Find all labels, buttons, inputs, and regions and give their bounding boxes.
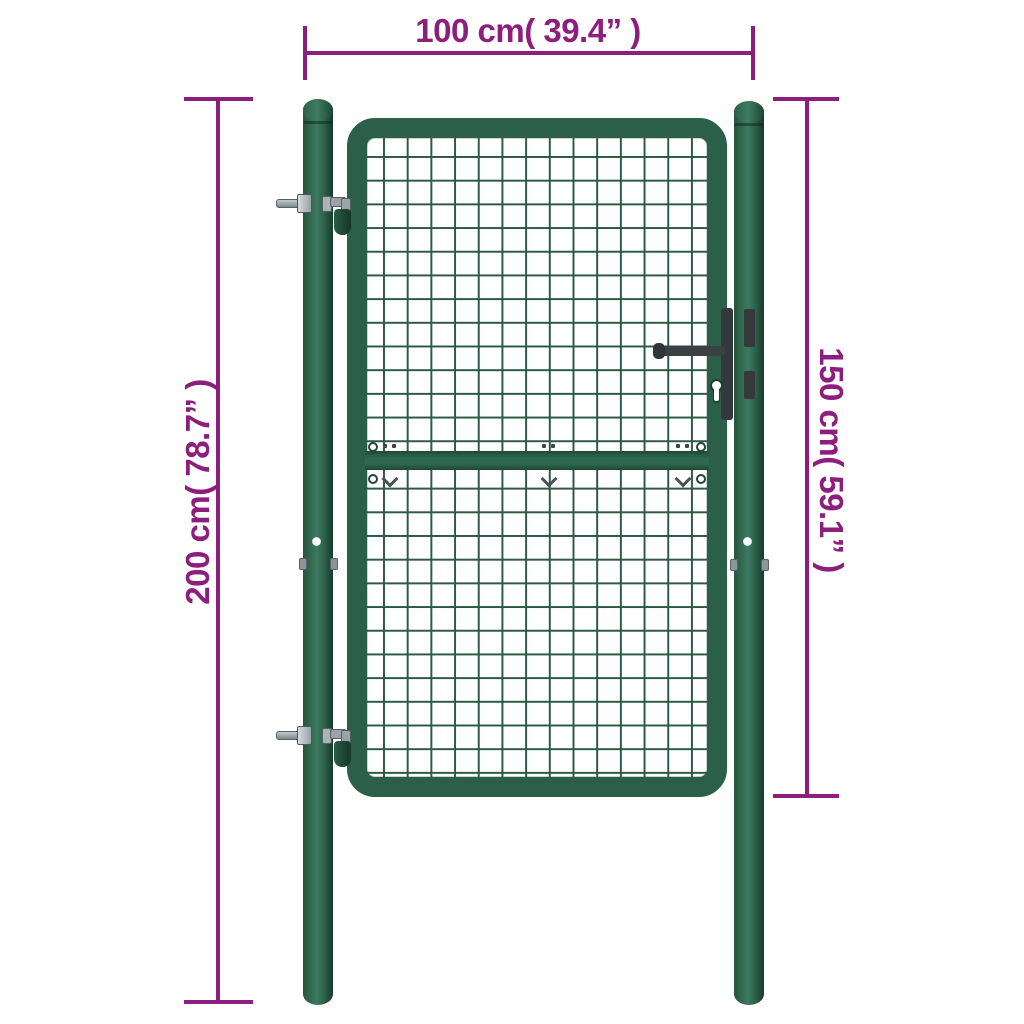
gate-height-dimension-cap-bottom: [773, 794, 839, 798]
width-dimension-line: [305, 51, 753, 55]
rail-bolt-right-bottom: [696, 474, 706, 484]
left-post-hole: [312, 537, 321, 546]
gate-frame: [347, 118, 727, 797]
post-height-dimension-label: 200 cm( 78.7” ): [179, 379, 217, 604]
right-post-tab-right: [761, 559, 769, 571]
gate-height-dimension-label: 150 cm( 59.1” ): [812, 347, 850, 572]
left-post-tab-right: [330, 558, 338, 570]
left-post-cap: [303, 99, 333, 121]
rail-bolt-right-top: [696, 442, 706, 452]
rail-clip-dots-center: [542, 444, 555, 448]
middle-rail: [365, 451, 709, 470]
left-post: [303, 99, 333, 1005]
top-hinge-sleeve: [334, 209, 351, 235]
rail-bolt-left-top: [368, 442, 378, 452]
width-dimension-label: 100 cm( 39.4” ): [415, 12, 640, 50]
latch-keeper-upper: [744, 309, 755, 347]
keyhole-tail: [714, 389, 719, 401]
top-hinge-nut: [297, 194, 312, 213]
bottom-hinge-nut: [297, 726, 312, 745]
lock-plate: [721, 308, 733, 420]
post-height-dimension-cap-top: [184, 97, 253, 101]
bottom-hinge-sleeve: [334, 741, 351, 767]
post-height-dimension-line: [216, 99, 220, 1002]
handle-end-cap: [653, 343, 665, 359]
left-post-cap-groove: [304, 121, 332, 124]
left-post-tab-left: [299, 558, 307, 570]
diagram-canvas: 100 cm( 39.4” ) 200 cm( 78.7” ) 150 cm( …: [0, 0, 1024, 1024]
latch-keeper-lower: [744, 371, 755, 399]
rail-clip-dots-left: [383, 444, 396, 448]
right-post-hole: [743, 537, 752, 546]
right-post-cap-groove: [735, 123, 763, 126]
right-post: [734, 101, 764, 1005]
right-post-cap: [734, 101, 764, 123]
gate-height-dimension-cap-top: [773, 97, 839, 101]
width-dimension-cap-left: [303, 26, 307, 80]
gate-height-dimension-line: [805, 99, 809, 796]
rail-clip-dots-right: [676, 444, 689, 448]
right-post-tab-left: [730, 559, 738, 571]
handle-icon: [658, 346, 725, 356]
post-height-dimension-cap-bottom: [184, 1000, 253, 1004]
rail-bolt-left-bottom: [368, 474, 378, 484]
width-dimension-cap-right: [751, 26, 755, 80]
